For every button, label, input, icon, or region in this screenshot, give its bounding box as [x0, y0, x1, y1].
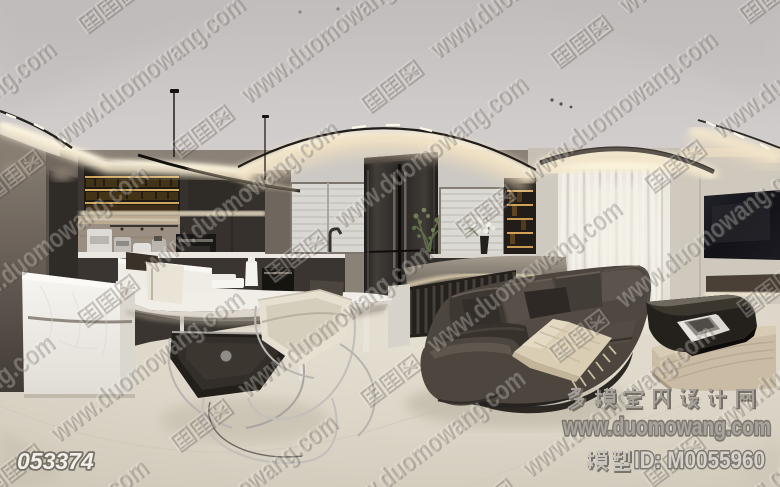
- svg-text:053374: 053374: [17, 448, 94, 474]
- svg-text:ID: M0055960: ID: M0055960: [634, 447, 765, 474]
- svg-text:www.duomowang.com: www.duomowang.com: [562, 413, 771, 441]
